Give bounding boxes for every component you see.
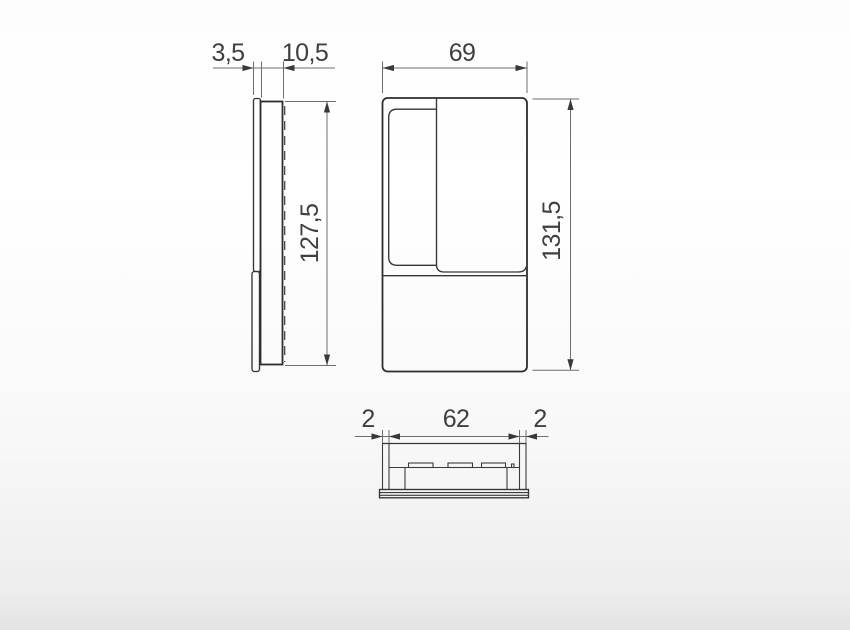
drawing-canvas: 3,5 10,5 127,5 69 131,5 <box>0 0 850 630</box>
right-wall <box>520 444 527 490</box>
arrowhead <box>372 433 383 439</box>
dim-label-front-width: 69 <box>449 39 476 67</box>
front-view <box>383 98 528 372</box>
side-view <box>252 99 285 372</box>
dim-label-front-height: 131,5 <box>538 201 566 261</box>
arrowhead <box>324 355 330 366</box>
flap-edge <box>437 99 527 272</box>
dim-label-plate-thickness: 3,5 <box>212 39 245 67</box>
side-body <box>261 102 283 365</box>
bottom-view <box>380 444 529 498</box>
detent-mark <box>512 464 515 468</box>
ext-lines-side-depths <box>254 62 284 99</box>
clip-tab <box>482 463 506 468</box>
arrowhead <box>526 433 537 439</box>
cavity-partitions <box>405 468 507 490</box>
arrowhead <box>389 433 400 439</box>
arrowhead <box>509 433 520 439</box>
dim-label-edge-right: 2 <box>533 405 546 433</box>
dim-side-depth-chain: 3,5 10,5 <box>212 39 335 99</box>
dim-label-inner-width: 62 <box>443 405 470 433</box>
dim-label-body-height: 127,5 <box>296 204 324 264</box>
side-plate-upper <box>254 99 261 272</box>
side-plate-lower <box>252 272 260 372</box>
front-outline <box>383 98 528 372</box>
arrowhead <box>567 359 573 370</box>
dim-label-edge-left: 2 <box>361 405 374 433</box>
left-wall <box>383 444 390 490</box>
dim-label-body-depth: 10,5 <box>282 39 328 67</box>
arrowhead <box>383 65 395 71</box>
dim-front-width: 69 <box>383 39 528 93</box>
dim-side-height: 127,5 <box>285 102 336 366</box>
clip-tab <box>409 463 434 468</box>
dim-front-height: 131,5 <box>533 99 580 370</box>
arrowhead <box>567 99 573 110</box>
dim-bottom-chain: 2 62 2 <box>355 405 549 443</box>
finger-recess-outline <box>389 109 437 265</box>
technical-drawing: 3,5 10,5 127,5 69 131,5 <box>0 0 850 630</box>
arrowhead <box>324 102 330 113</box>
flange-plate <box>380 490 529 498</box>
flange-plate-lines <box>380 493 529 496</box>
clip-tab <box>448 463 473 468</box>
arrowhead <box>516 65 528 71</box>
